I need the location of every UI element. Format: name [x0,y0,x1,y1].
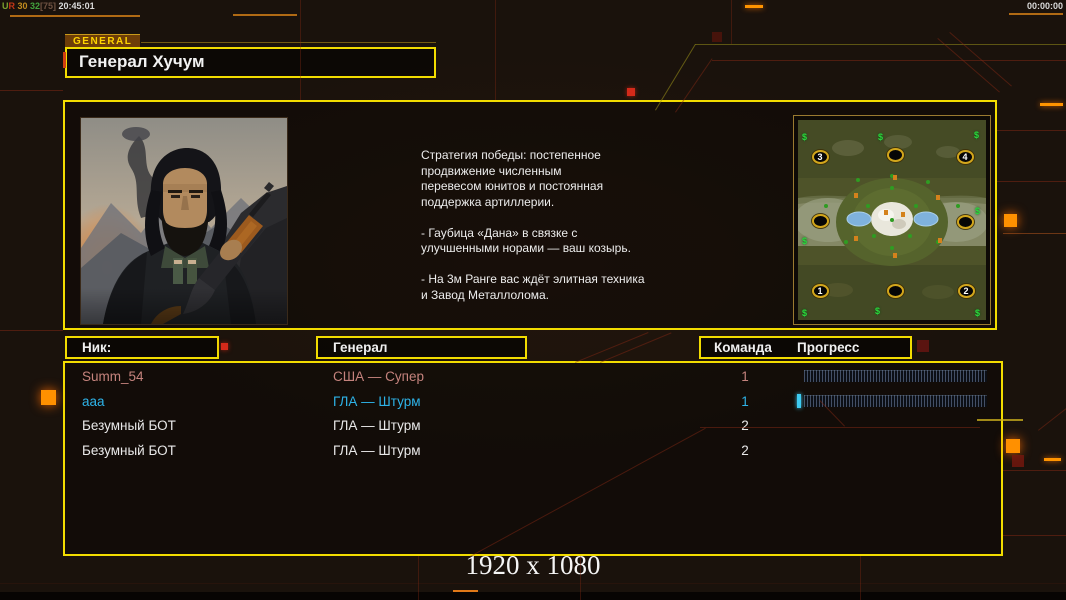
progress-bar-fill [797,394,801,408]
circuit-line [575,332,648,363]
glow-square [1006,439,1020,453]
dollar-icon: $ [975,206,980,216]
general-info-panel: Стратегия победы: постепенное продвижени… [63,100,997,330]
circuit-line [0,330,63,331]
minimap-spot-number: 4 [962,153,967,162]
minimap-spot [887,284,904,298]
circuit-line [0,90,63,91]
circuit-line [495,0,496,100]
debug-part: [75] [40,1,56,11]
circuit-dash [10,15,140,17]
player-row: Summ_54США — Супер1 [65,365,1001,390]
player-general: ГЛА — Штурм [333,418,421,433]
minimap: 3412$$$$$$$$ [798,120,986,320]
circuit-line [695,44,1066,45]
player-general: ГЛА — Штурм [333,394,421,409]
general-name: Генерал Хучум [79,52,205,72]
dollar-icon: $ [875,306,880,316]
debug-status: UR 30 32[75] 20:45:01 [2,1,95,11]
minimap-spot [957,215,974,229]
player-row: Безумный БОТГЛА — Штурм2 [65,439,1001,464]
minimap-frame: 3412$$$$$$$$ [793,115,991,325]
match-timer: 00:00:00 [1027,1,1063,11]
dollar-icon: $ [974,130,979,140]
circuit-line [1038,404,1066,431]
general-portrait-image [81,118,287,324]
minimap-spot [812,214,829,228]
minimap-start-spot-3: 3 [812,150,829,164]
circuit-line [1003,470,1066,471]
progress-header-label: Прогресс [797,340,859,355]
player-nick: Безумный БОТ [82,418,176,433]
glow-square [1012,455,1024,467]
circuit-dash [1044,458,1061,461]
dollar-icon: $ [802,308,807,318]
circuit-dash [1040,103,1063,106]
player-team: 1 [733,394,757,409]
circuit-line [997,181,1066,182]
circuit-line [1003,233,1066,234]
minimap-start-spot-2: 2 [958,284,975,298]
player-rows: Summ_54США — Супер1aaaГЛА — Штурм1Безумн… [65,365,1001,463]
circuit-line [0,583,1066,584]
player-team: 2 [733,418,757,433]
minimap-spot-number: 3 [817,153,822,162]
glow-square [917,340,929,352]
strategy-text: Стратегия победы: постепенное продвижени… [421,148,701,303]
nick-header-label: Ник: [82,340,111,355]
glow-square [627,88,635,96]
dollar-icon: $ [802,236,807,246]
circuit-line [937,38,1000,93]
minimap-spot [887,148,904,162]
player-team: 1 [733,369,757,384]
player-team: 2 [733,443,757,458]
general-portrait [80,117,288,325]
general-header: Генерал [316,336,527,359]
circuit-line [712,60,1066,61]
player-nick: Summ_54 [82,369,144,384]
minimap-spot-number: 2 [963,287,968,296]
glow-square [1004,214,1017,227]
dollar-icon: $ [878,132,883,142]
player-general: ГЛА — Штурм [333,443,421,458]
minimap-overlay: 3412$$$$$$$$ [798,120,986,320]
glow-square [221,343,228,350]
circuit-dash [233,14,297,16]
progress-bar [797,370,987,382]
general-title-box: Генерал Хучум [65,47,436,78]
player-row: aaaГЛА — Штурм1 [65,390,1001,415]
minimap-start-spot-1: 1 [812,284,829,298]
progress-bar [797,395,987,407]
glow-square [41,390,56,405]
circuit-line [731,0,732,44]
player-nick: aaa [82,394,105,409]
player-nick: Безумный БОТ [82,443,176,458]
loading-screen: UR 30 32[75] 20:45:01 00:00:00 GENERAL Г… [0,0,1066,600]
glow-square [712,32,722,42]
minimap-start-spot-4: 4 [957,150,974,164]
resolution-label: 1920 x 1080 [0,550,1066,581]
player-row: Безумный БОТГЛА — Штурм2 [65,414,1001,439]
nick-header: Ник: [65,336,219,359]
progress-bar-track [804,370,987,382]
debug-part: 30 [15,1,28,11]
minimap-spot-number: 1 [817,287,822,296]
bottom-bar [0,592,1066,600]
debug-part: 32 [28,1,41,11]
timer-underline [1009,13,1063,15]
dollar-icon: $ [975,308,980,318]
progress-bar-track [804,395,987,407]
circuit-line [997,130,1066,131]
team-progress-header: Команда Прогресс [699,336,912,359]
circuit-dash [745,5,763,8]
player-general: США — Супер [333,369,424,384]
circuit-line [949,32,1012,87]
team-header-label: Команда [714,340,772,355]
dollar-icon: $ [802,132,807,142]
debug-part: 20:45:01 [56,1,95,11]
circuit-line [600,332,671,363]
circuit-line [1003,535,1066,536]
general-header-label: Генерал [333,340,387,355]
player-table: Summ_54США — Супер1aaaГЛА — Штурм1Безумн… [63,361,1003,556]
tab-extension-line [141,42,436,43]
